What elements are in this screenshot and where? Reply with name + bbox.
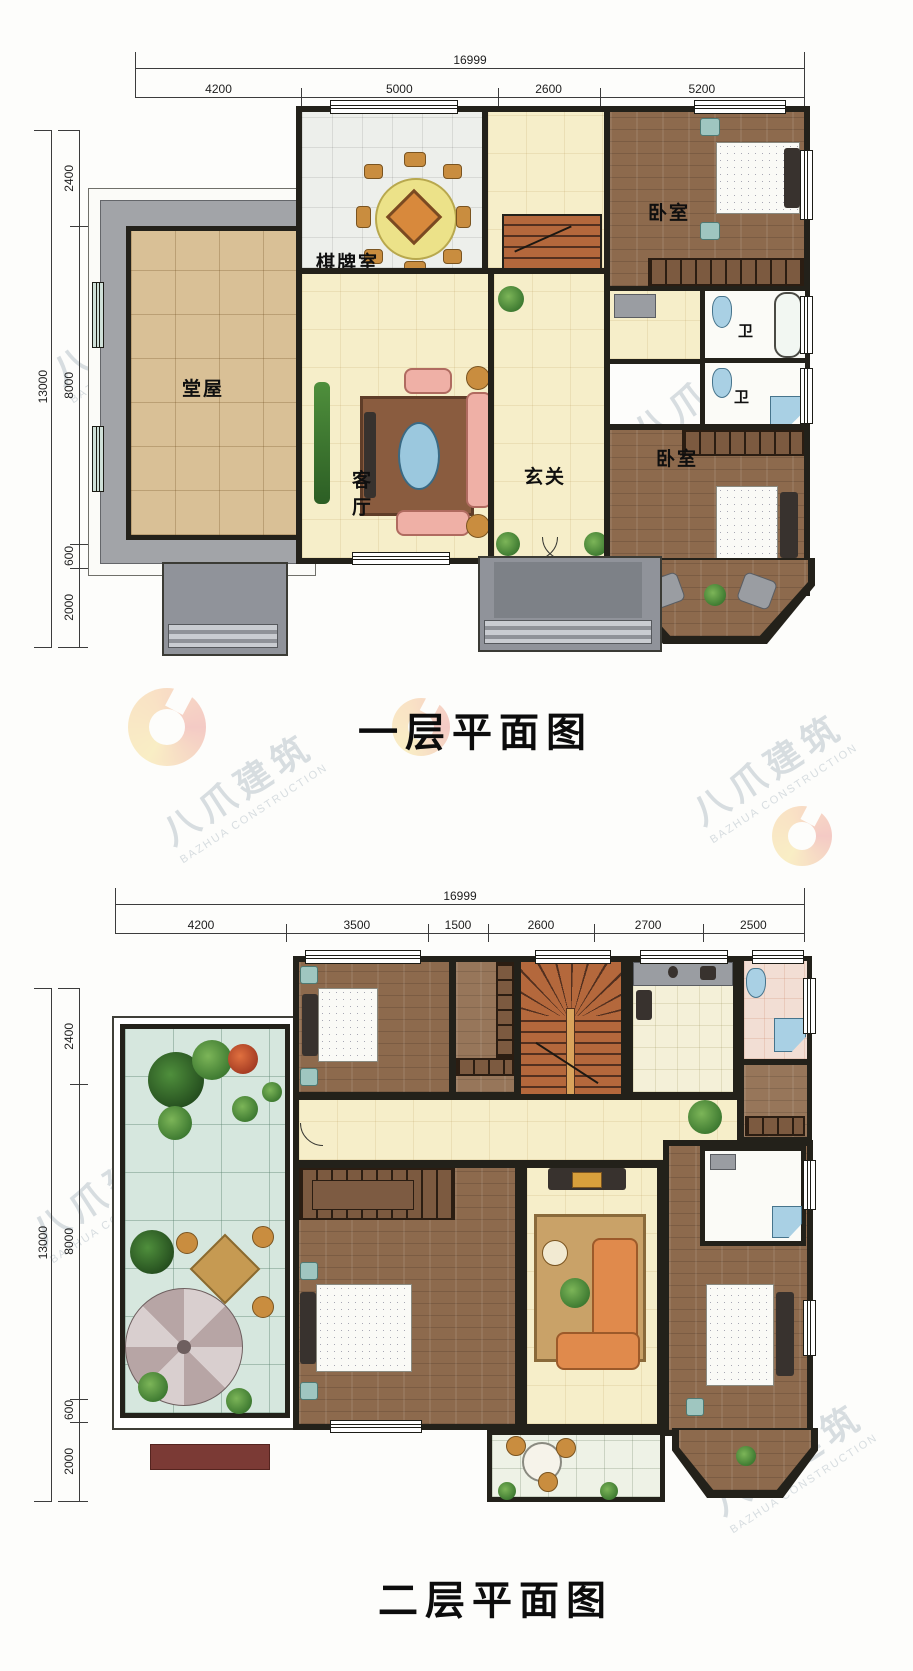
- nightstand: [700, 118, 720, 136]
- chair: [456, 206, 471, 228]
- chair: [556, 1438, 576, 1458]
- sink: [710, 1154, 736, 1170]
- nightstand: [300, 1382, 318, 1400]
- shrub: [232, 1096, 258, 1122]
- armchair: [404, 368, 452, 394]
- room-label-bedroom-bottom: 卧室: [656, 444, 698, 471]
- window: [92, 426, 104, 492]
- window: [803, 1160, 816, 1210]
- chair: [538, 1472, 558, 1492]
- nightstand: [686, 1398, 704, 1416]
- window: [535, 950, 611, 964]
- floor2-title: 二层平面图: [378, 1568, 613, 1626]
- room-foyer: [488, 268, 610, 564]
- shrub: [158, 1106, 192, 1140]
- window: [752, 950, 804, 964]
- cooktop: [700, 966, 716, 980]
- bed: [716, 486, 778, 564]
- chair: [506, 1436, 526, 1456]
- sofa: [396, 510, 470, 536]
- bed: [318, 988, 378, 1062]
- bed-headboard: [780, 492, 798, 558]
- shrub: [192, 1040, 232, 1080]
- dim-value: 16999: [443, 889, 476, 904]
- chair: [443, 249, 462, 264]
- chair: [404, 152, 426, 167]
- chair: [252, 1296, 274, 1318]
- shrub: [262, 1082, 282, 1102]
- bed: [706, 1284, 774, 1386]
- plant: [498, 286, 524, 312]
- dim-value: 16999: [453, 53, 486, 68]
- plant: [704, 584, 726, 606]
- dim-value: 2700: [594, 918, 703, 933]
- bed-headboard: [300, 1292, 316, 1364]
- closet-rack: [496, 962, 514, 1058]
- window: [694, 100, 786, 114]
- shrub: [130, 1230, 174, 1274]
- dim-value: 13000: [36, 370, 50, 408]
- flower-shrub: [228, 1044, 258, 1074]
- bed-headboard: [302, 994, 318, 1056]
- window: [640, 950, 728, 964]
- chair: [176, 1232, 198, 1254]
- chair: [443, 164, 462, 179]
- stairs: [502, 214, 602, 270]
- dim-value: 2000: [58, 568, 79, 647]
- cabinet: [636, 990, 652, 1020]
- sink: [668, 966, 678, 978]
- dim-value: 600: [58, 544, 79, 568]
- room-label-living: 客厅: [346, 470, 373, 524]
- dim-value: 2600: [498, 82, 600, 97]
- wardrobe: [648, 258, 804, 286]
- floor-plan-sheet: 八爪建筑 BAZHUA CONSTRUCTION 八爪建筑 BAZHUA CON…: [0, 0, 913, 1671]
- shrub: [138, 1372, 168, 1402]
- dim-value: 4200: [116, 918, 286, 933]
- nightstand: [300, 1262, 318, 1280]
- window: [803, 978, 816, 1034]
- shrub: [600, 1482, 618, 1500]
- kitchen-counter: [633, 962, 733, 986]
- floor1-dim-top-segments: 4200 5000 2600 5200: [135, 69, 805, 98]
- coffee-table: [398, 422, 440, 490]
- dim-value: 3500: [286, 918, 428, 933]
- dim-value: 4200: [136, 82, 301, 97]
- plant: [560, 1278, 590, 1308]
- dim-value: 2600: [488, 918, 593, 933]
- floor1-dim-top-total: 16999: [135, 52, 805, 69]
- shrub: [226, 1388, 252, 1414]
- floor2-dim-top-segments: 4200 3500 1500 2600 2700 2500: [115, 905, 805, 934]
- side-table: [466, 366, 490, 390]
- toilet: [746, 968, 766, 998]
- chaise: [556, 1332, 640, 1370]
- dim-value: 600: [58, 1399, 79, 1423]
- closet-rack: [456, 1058, 514, 1076]
- wardrobe: [682, 430, 804, 456]
- dim-value: 1500: [428, 918, 489, 933]
- bed: [316, 1284, 412, 1372]
- dim-value: 2500: [703, 918, 804, 933]
- wardrobe-inner: [312, 1180, 414, 1210]
- nightstand: [300, 1068, 318, 1086]
- dim-value: 8000: [58, 226, 79, 544]
- lower-roof: [150, 1444, 270, 1470]
- plant: [736, 1446, 756, 1466]
- sink-counter: [614, 294, 656, 318]
- plant: [496, 532, 520, 556]
- sofa: [592, 1238, 638, 1342]
- room-label-bedroom-top: 卧室: [648, 198, 690, 225]
- nightstand: [300, 966, 318, 984]
- room-label-main-hall: 堂屋: [182, 374, 224, 401]
- floor2-dim-left-segments: 2400 8000 600 2000: [58, 988, 80, 1502]
- side-table: [542, 1240, 568, 1266]
- room-label-bath2: 卫: [734, 386, 749, 407]
- window: [330, 1420, 422, 1433]
- bathtub: [774, 292, 802, 358]
- dim-value: 2000: [58, 1422, 79, 1501]
- bazhua-logo-icon: [772, 806, 832, 866]
- window: [352, 552, 450, 565]
- dim-value: 5200: [600, 82, 804, 97]
- window: [92, 282, 104, 348]
- toilet: [712, 296, 732, 328]
- shrub: [498, 1482, 516, 1500]
- watermark: 八爪建筑 BAZHUA CONSTRUCTION: [627, 663, 913, 880]
- room-label-foyer: 玄关: [524, 462, 566, 489]
- window: [800, 368, 813, 424]
- window: [330, 100, 458, 114]
- chair: [364, 164, 383, 179]
- window: [800, 296, 813, 354]
- bed-headboard: [784, 148, 800, 208]
- porch-steps: [484, 620, 652, 644]
- window: [803, 1300, 816, 1356]
- dim-value: 2400: [58, 989, 79, 1084]
- porch-steps: [168, 624, 278, 648]
- room-label-bath1: 卫: [738, 320, 753, 341]
- chair: [252, 1226, 274, 1248]
- plant-row: [314, 382, 330, 504]
- dim-value: 2400: [58, 131, 79, 226]
- bed-headboard: [776, 1292, 794, 1376]
- toilet: [712, 368, 732, 398]
- plant: [688, 1100, 722, 1134]
- floor1-dim-left-total: 13000: [34, 130, 52, 648]
- closet-rack: [745, 1116, 805, 1136]
- nightstand: [700, 222, 720, 240]
- bazhua-logo-icon: [128, 688, 206, 766]
- dim-value: 5000: [301, 82, 497, 97]
- floor1-title: 一层平面图: [358, 700, 593, 758]
- porch-mat: [494, 562, 642, 618]
- chair: [356, 206, 371, 228]
- window: [305, 950, 421, 964]
- window: [800, 150, 813, 220]
- floor1-dim-left-segments: 2400 8000 600 2000: [58, 130, 80, 648]
- dim-value: 13000: [36, 1226, 50, 1264]
- floor2-dim-top-total: 16999: [115, 888, 805, 905]
- side-table: [466, 514, 490, 538]
- dim-value: 8000: [58, 1084, 79, 1399]
- floor2-dim-left-total: 13000: [34, 988, 52, 1502]
- tv: [572, 1172, 602, 1188]
